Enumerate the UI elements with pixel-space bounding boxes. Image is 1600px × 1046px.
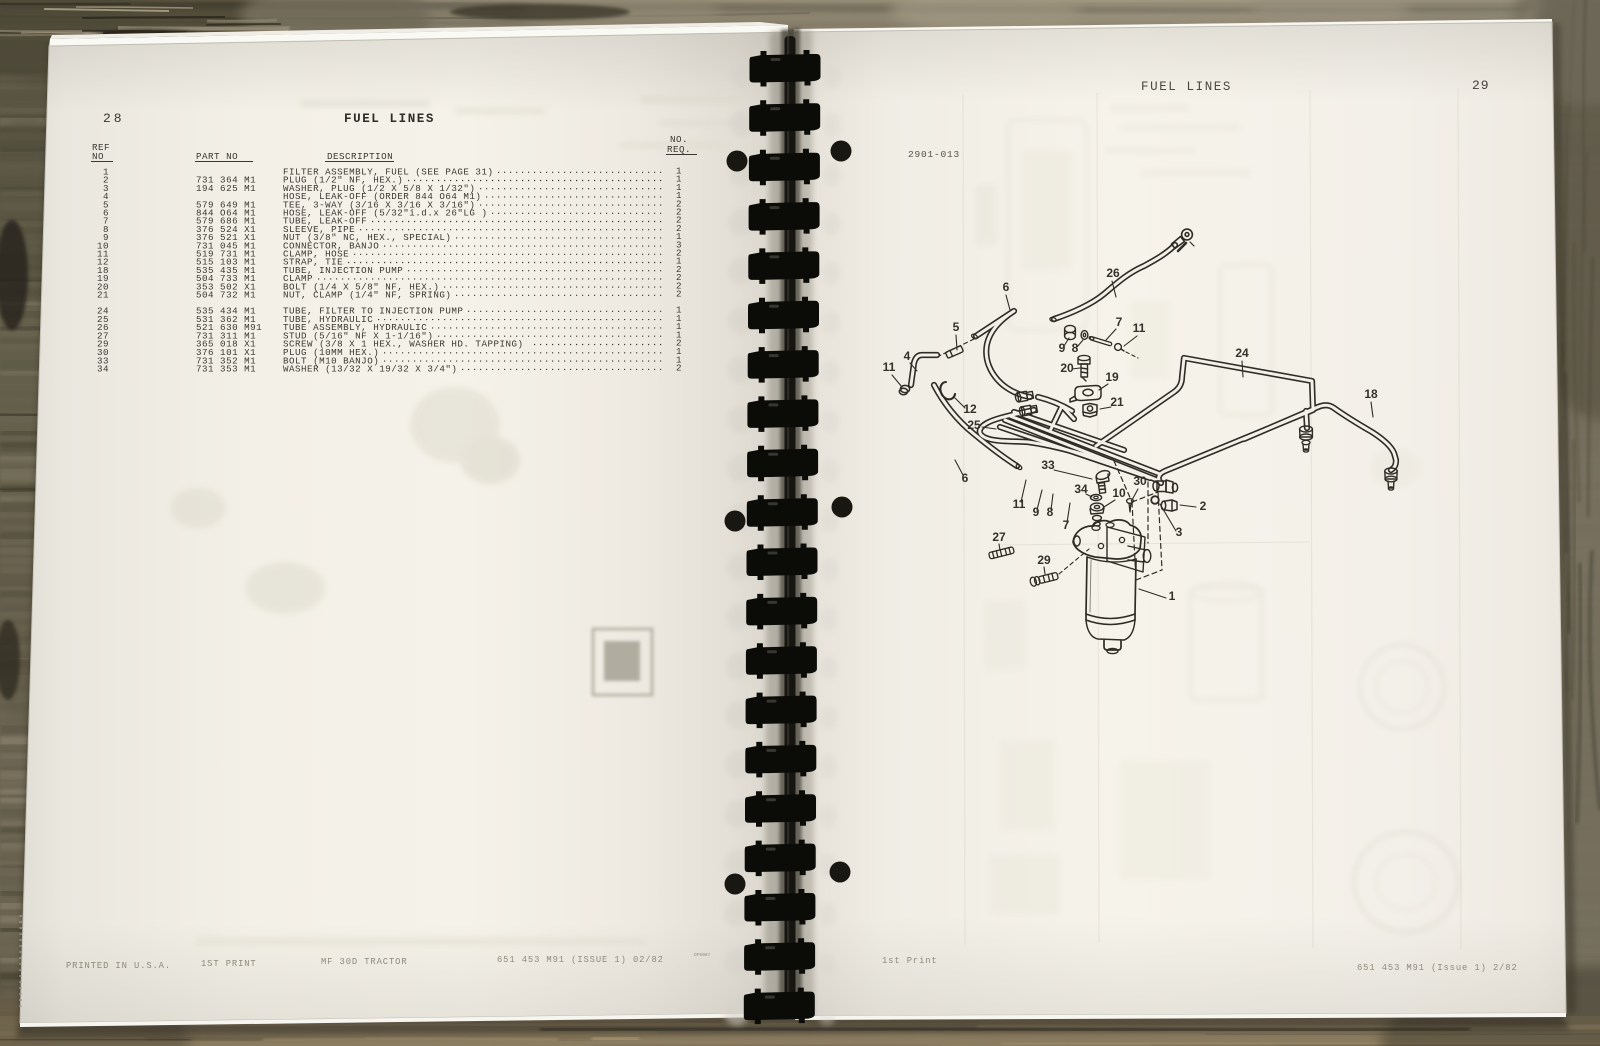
svg-text:FUEL LINES: FUEL LINES	[1141, 80, 1232, 94]
svg-text:21: 21	[97, 290, 109, 301]
svg-text:NUT, CLAMP (1/4" NF, SPRING): NUT, CLAMP (1/4" NF, SPRING)	[283, 290, 451, 301]
svg-text:9: 9	[1033, 505, 1040, 519]
svg-text:19: 19	[1105, 370, 1119, 384]
svg-text:11: 11	[1013, 497, 1026, 511]
svg-text:5: 5	[953, 320, 960, 334]
svg-text:DF6067: DF6067	[694, 952, 711, 958]
svg-text:20: 20	[1060, 361, 1074, 375]
svg-text:10: 10	[1112, 486, 1126, 500]
svg-text:PART NO: PART NO	[196, 151, 238, 162]
svg-text:DESCRIPTION: DESCRIPTION	[327, 151, 393, 162]
svg-text:8: 8	[1072, 341, 1079, 355]
svg-text:7: 7	[1063, 518, 1070, 532]
svg-text:30: 30	[1133, 474, 1147, 488]
svg-text:7: 7	[1116, 315, 1123, 329]
svg-text:29: 29	[1472, 78, 1490, 93]
svg-text:25: 25	[967, 418, 981, 432]
svg-text:3: 3	[1176, 525, 1183, 539]
svg-text:11: 11	[1133, 321, 1146, 335]
svg-text:REQ.: REQ.	[667, 144, 691, 155]
svg-text:1: 1	[1169, 589, 1176, 603]
svg-text:34: 34	[97, 364, 109, 375]
svg-text:24: 24	[1235, 346, 1249, 360]
svg-text:18: 18	[1364, 387, 1378, 401]
svg-text:FUEL LINES: FUEL LINES	[344, 112, 435, 126]
svg-text:33: 33	[1041, 458, 1055, 472]
svg-text:8: 8	[1047, 505, 1054, 519]
svg-text:28: 28	[103, 111, 125, 126]
svg-text:27: 27	[992, 530, 1006, 544]
svg-text:2: 2	[676, 289, 682, 300]
svg-text:2901-013: 2901-013	[908, 149, 960, 160]
svg-text:6: 6	[962, 471, 969, 485]
svg-text:2: 2	[1200, 499, 1207, 513]
svg-text:26: 26	[1106, 266, 1120, 280]
svg-text:PRINTED IN U.S.A.: PRINTED IN U.S.A.	[66, 961, 171, 971]
svg-text:11: 11	[883, 360, 896, 374]
svg-text:4: 4	[904, 349, 911, 363]
svg-text:WASHER (13/32 X 19/32 X 3/4"): WASHER (13/32 X 19/32 X 3/4")	[283, 364, 457, 375]
svg-text:NO: NO	[92, 151, 104, 162]
svg-text:1st Print: 1st Print	[882, 956, 938, 966]
svg-text:6: 6	[1003, 280, 1010, 294]
svg-text:651 453 M91 (ISSUE 1) 02/8: 651 453 M91 (ISSUE 1) 02/82	[497, 955, 664, 965]
svg-text:651 453 M91 (Issue 1) 2/82: 651 453 M91 (Issue 1) 2/82	[1357, 963, 1518, 973]
svg-text:194 625 M1: 194 625 M1	[196, 183, 256, 194]
svg-text:2: 2	[676, 363, 682, 374]
svg-text:1ST PRINT: 1ST PRINT	[201, 959, 257, 969]
svg-text:9: 9	[1059, 341, 1066, 355]
svg-text:21: 21	[1110, 395, 1124, 409]
svg-text:29: 29	[1037, 553, 1051, 567]
svg-text:MF 30D TRACTOR: MF 30D TRACTOR	[321, 957, 408, 967]
svg-text:504 732 M1: 504 732 M1	[196, 290, 256, 301]
svg-text:12: 12	[963, 402, 977, 416]
svg-text:34: 34	[1074, 482, 1088, 496]
svg-text:731 353 M1: 731 353 M1	[196, 364, 256, 375]
